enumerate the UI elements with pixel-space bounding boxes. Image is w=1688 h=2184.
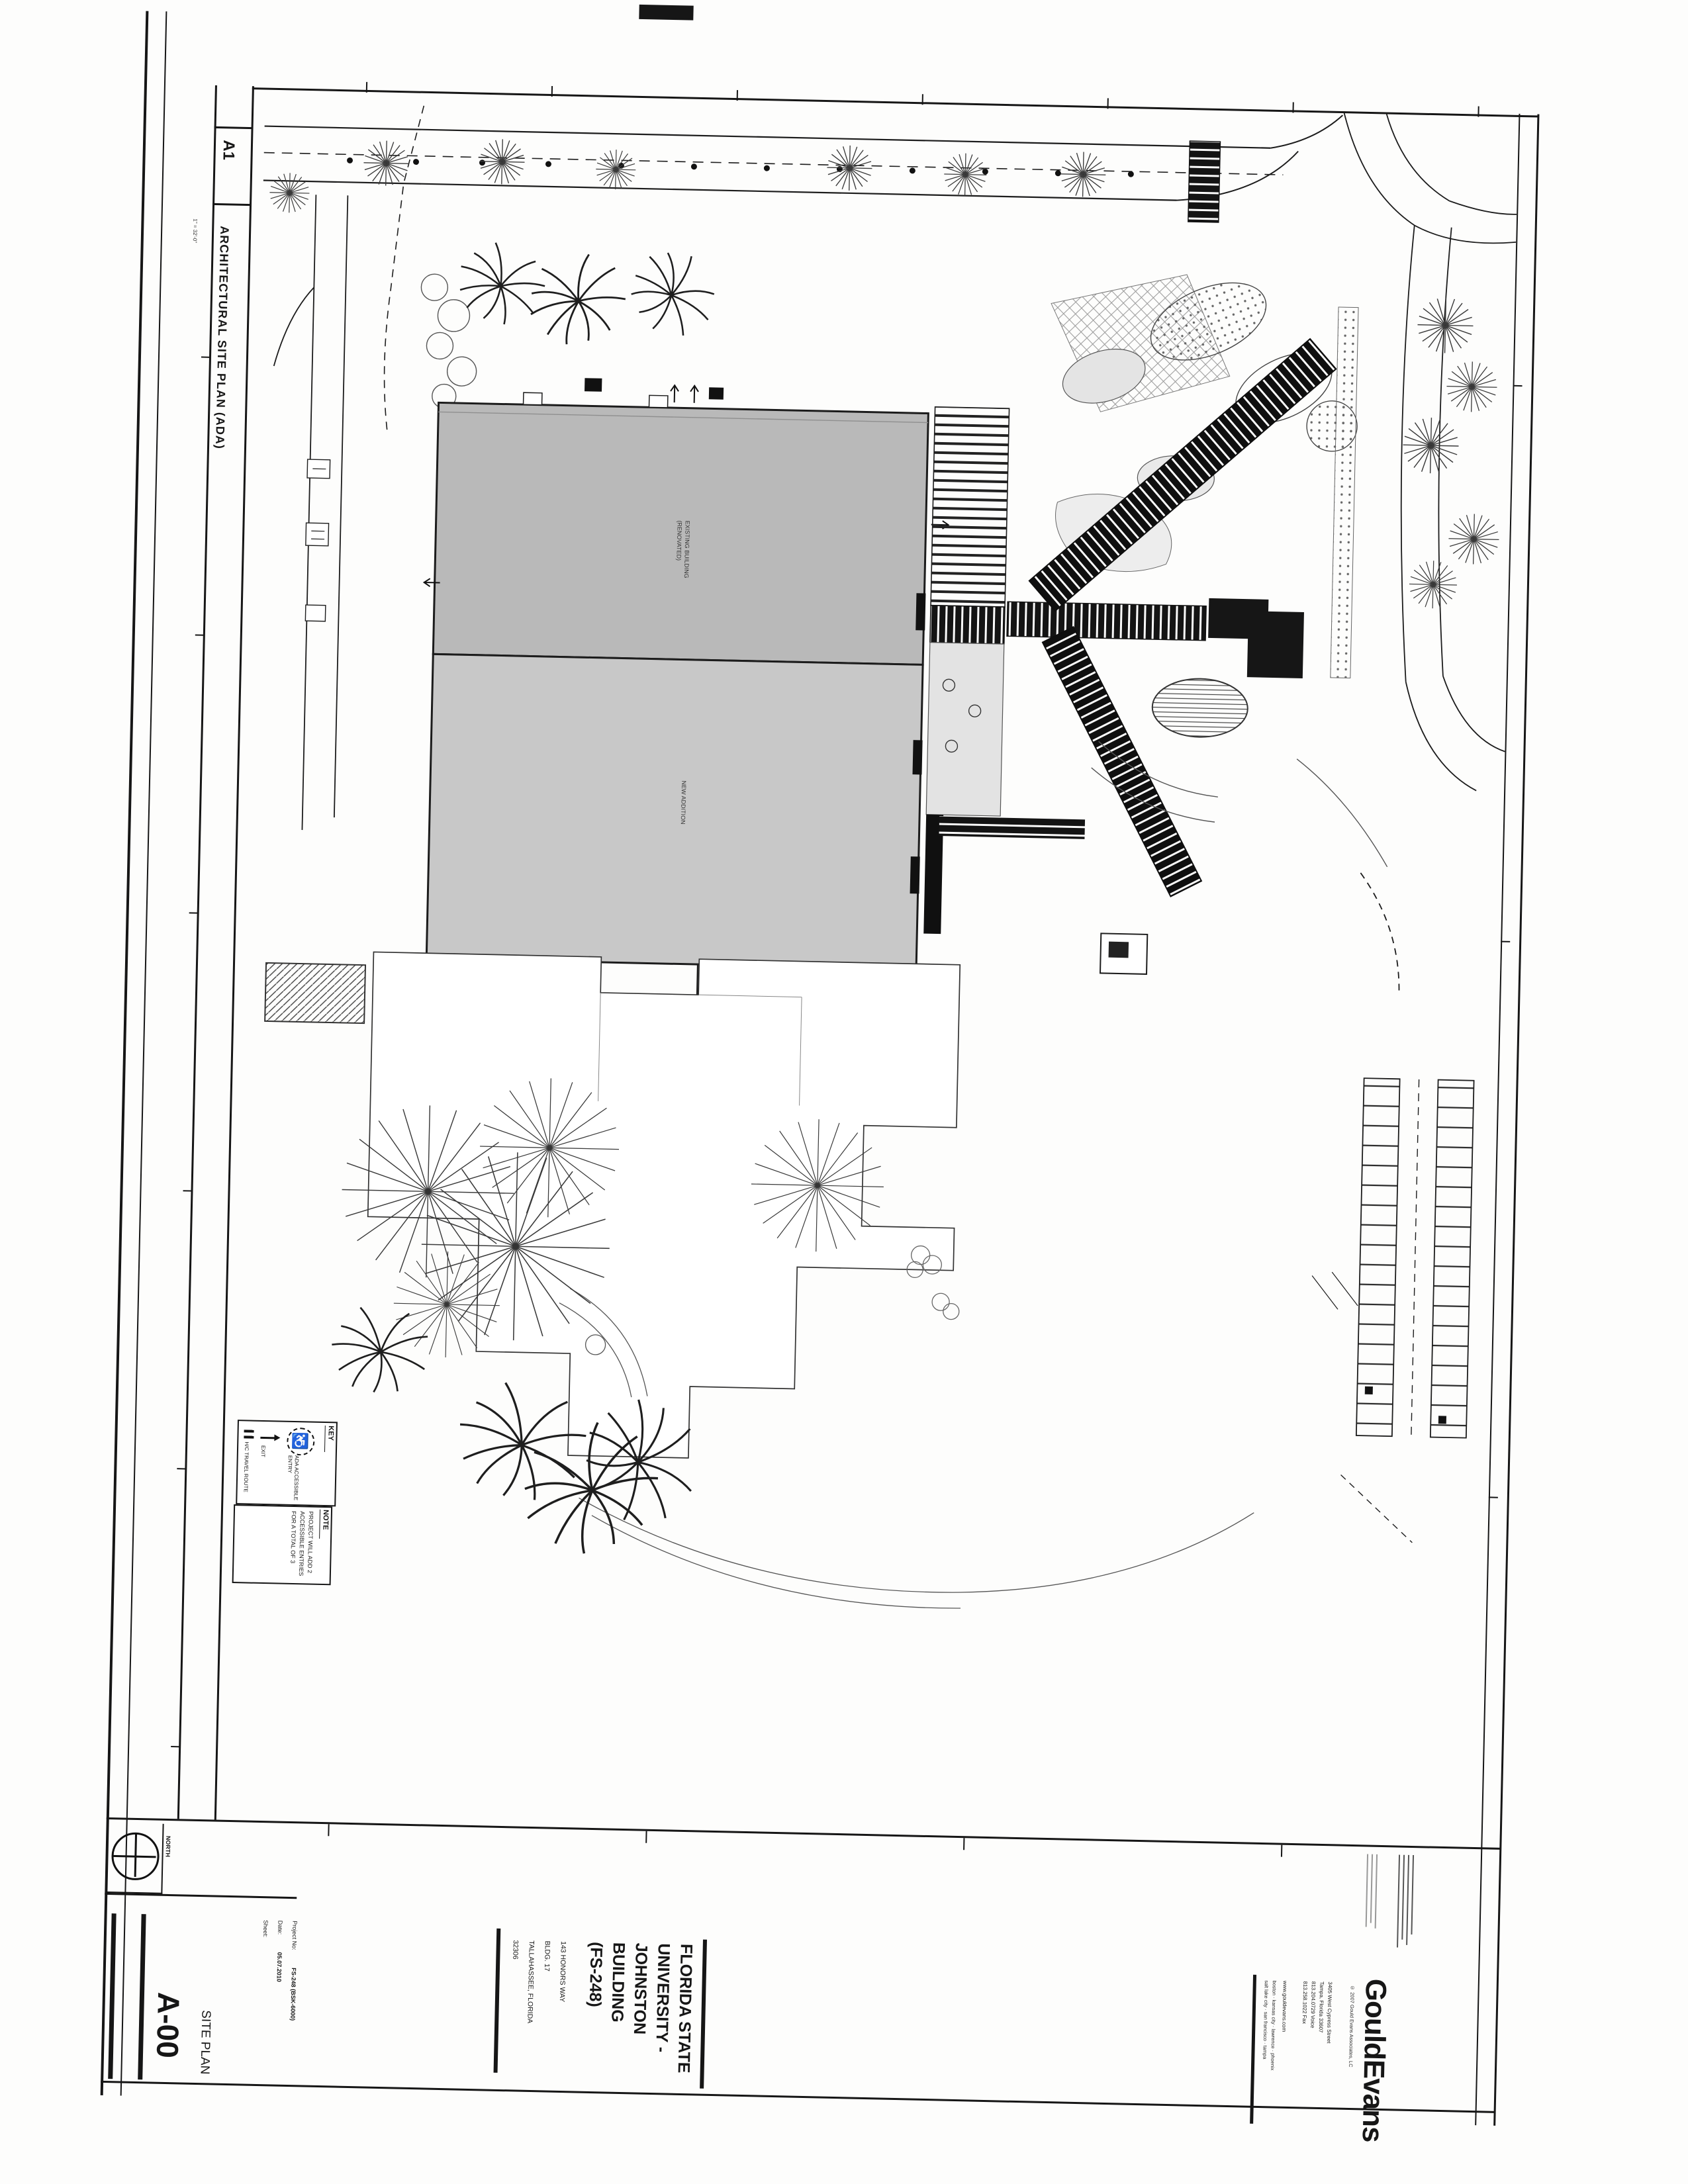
titleblock-tick bbox=[328, 1824, 329, 1836]
sheet-title: SITE PLAN bbox=[197, 2010, 212, 2083]
address-line: BLDG. 17 bbox=[536, 1940, 555, 2087]
note-line: ACCESSIBLE ENTRIES bbox=[297, 1511, 306, 1580]
street-trees bbox=[269, 133, 1106, 231]
scan-artifact bbox=[639, 5, 693, 21]
rule-bar bbox=[1250, 1975, 1256, 2124]
travel-route-dashes-icon bbox=[244, 1430, 254, 1438]
field-label: Project No: bbox=[291, 1921, 299, 1950]
east-palms bbox=[1399, 296, 1504, 610]
street-bollards bbox=[347, 154, 1134, 181]
key-item-label: H/C TRAVEL ROUTE bbox=[242, 1441, 250, 1497]
grid-tick bbox=[1501, 941, 1510, 942]
grid-tick bbox=[195, 634, 205, 635]
note-box: NOTE PROJECT WILL ADD 2 ACCESSIBLE ENTRI… bbox=[232, 1504, 333, 1585]
drawing-ref: A1 bbox=[218, 140, 238, 160]
a1-box-top bbox=[214, 126, 253, 129]
ada-wheelchair-icon: ♿ bbox=[287, 1428, 315, 1456]
project-name-line: JOHNSTON bbox=[627, 1942, 653, 2090]
plaza bbox=[1000, 262, 1400, 979]
frame-left-inner bbox=[120, 11, 167, 2095]
rule-bar bbox=[494, 1929, 501, 2073]
field-value: FS-248 (BSK-6000) bbox=[285, 1967, 301, 2020]
project-name-line: UNIVERSITY - bbox=[649, 1943, 675, 2091]
rule-bar bbox=[700, 1940, 707, 2089]
micro-text bbox=[1370, 1854, 1373, 1923]
site-plan-drawing bbox=[214, 87, 1519, 1847]
grid-tick bbox=[1513, 385, 1522, 387]
key-title: KEY bbox=[324, 1426, 335, 1452]
project-name-line: FLORIDA STATE bbox=[672, 1944, 698, 2091]
grid-tick bbox=[177, 1468, 186, 1469]
note-title: NOTE bbox=[319, 1510, 330, 1539]
firm-website: www.gouldevans.com bbox=[1281, 1981, 1288, 2032]
key-item-ada-entry: ♿ ADA ACCESSIBLE ENTRY bbox=[285, 1428, 314, 1500]
campus-buildings bbox=[252, 950, 1266, 1615]
rule-bar bbox=[138, 1914, 146, 2079]
titleblock-tick bbox=[963, 1838, 964, 1850]
key-item-travel-route: H/C TRAVEL ROUTE bbox=[242, 1426, 254, 1498]
planting-bed-nw bbox=[418, 274, 478, 409]
field-value: 05.07.2010 bbox=[271, 1952, 286, 1981]
project-name-line: BUILDING bbox=[604, 1942, 630, 2090]
grid-tick bbox=[201, 357, 211, 358]
east-road bbox=[1325, 113, 1519, 996]
palm-cluster-north bbox=[445, 232, 729, 400]
micro-text bbox=[1401, 1855, 1405, 1940]
note-line: PROJECT WILL ADD 2 bbox=[305, 1511, 315, 1580]
address-line: 143 HONORS WAY bbox=[552, 1941, 571, 2088]
north-block bbox=[107, 1823, 164, 1894]
titleblock-fields: Project No:FS-248 (BSK-6000) Date:05.07.… bbox=[255, 1920, 302, 2083]
north-label: NORTH bbox=[165, 1836, 172, 1857]
micro-text bbox=[1411, 1855, 1414, 1934]
grid-tick bbox=[1489, 1496, 1498, 1498]
strip-line-a bbox=[177, 85, 217, 1819]
drawing-title: ARCHITECTURAL SITE PLAN (ADA) bbox=[212, 226, 231, 449]
titleblock-tick bbox=[645, 1831, 647, 1843]
key-box: KEY H/C TRAVEL ROUTE EXIT ♿ ADA ACCESSIB… bbox=[236, 1420, 338, 1506]
frame-left-outer bbox=[101, 11, 149, 2095]
new-addition-label: NEW ADDITION bbox=[680, 781, 687, 825]
project-name-line: (FS-248) bbox=[582, 1942, 608, 2089]
field-label: Date: bbox=[277, 1921, 283, 1935]
key-item-label: EXIT bbox=[259, 1445, 266, 1501]
rule-bar bbox=[108, 1913, 116, 2079]
titleblock-bottom-rule bbox=[101, 2081, 1495, 2113]
grid-tick bbox=[171, 1746, 180, 1747]
west-walk bbox=[263, 194, 348, 831]
drawing-sheet: A1 1" = 32'-0" ARCHITECTURAL SITE PLAN (… bbox=[0, 0, 1688, 2184]
address-line: 32306 bbox=[504, 1940, 524, 2087]
note-text: PROJECT WILL ADD 2 ACCESSIBLE ENTRIES FO… bbox=[288, 1511, 315, 1580]
field-label: Sheet: bbox=[262, 1920, 269, 1937]
sheet-number: A-00 bbox=[149, 1991, 187, 2081]
micro-text bbox=[1397, 1855, 1400, 1948]
firm-logo: GouldEvans bbox=[1356, 1978, 1392, 2136]
firm-address: 3405 West Cypress Street Tampa, Florida … bbox=[1297, 1981, 1334, 2122]
address-line: TALLAHASSEE, FLORIDA bbox=[520, 1940, 539, 2087]
micro-text bbox=[1406, 1855, 1409, 1945]
north-arrow-icon bbox=[111, 1832, 160, 1881]
wheelchair-glyph: ♿ bbox=[293, 1433, 308, 1451]
grid-tick bbox=[189, 912, 199, 913]
parking-lot bbox=[1306, 1077, 1474, 1544]
firm-offices: boston · kansas city · lawrence · phoeni… bbox=[1259, 1980, 1278, 2120]
project-name: FLORIDA STATE UNIVERSITY - JOHNSTON BUIL… bbox=[582, 1942, 698, 2091]
existing-building-label: EXISTING BUILDING (RENOVATED) bbox=[674, 520, 692, 619]
project-address: 143 HONORS WAY BLDG. 17 TALLAHASSEE, FLO… bbox=[504, 1940, 571, 2088]
scanned-sheet-page: A1 1" = 32'-0" ARCHITECTURAL SITE PLAN (… bbox=[0, 0, 1688, 2184]
north-block-rule bbox=[105, 1893, 297, 1899]
key-item-exit: EXIT bbox=[259, 1427, 280, 1499]
key-item-label: ADA ACCESSIBLE ENTRY bbox=[285, 1455, 300, 1503]
a1-box-bottom bbox=[212, 203, 251, 206]
titleblock-tick bbox=[1281, 1845, 1282, 1857]
exit-arrow-icon bbox=[260, 1433, 280, 1442]
north-road bbox=[258, 92, 1343, 455]
drawing-scale: 1" = 32'-0" bbox=[192, 218, 199, 243]
key-items: H/C TRAVEL ROUTE EXIT ♿ ADA ACCESSIBLE E… bbox=[242, 1426, 318, 1499]
micro-text bbox=[1366, 1854, 1368, 1927]
micro-text bbox=[1375, 1854, 1378, 1929]
firm-copyright: © 2007 Gould Evans Associates, LC bbox=[1348, 1985, 1356, 2068]
grid-tick bbox=[183, 1190, 192, 1191]
